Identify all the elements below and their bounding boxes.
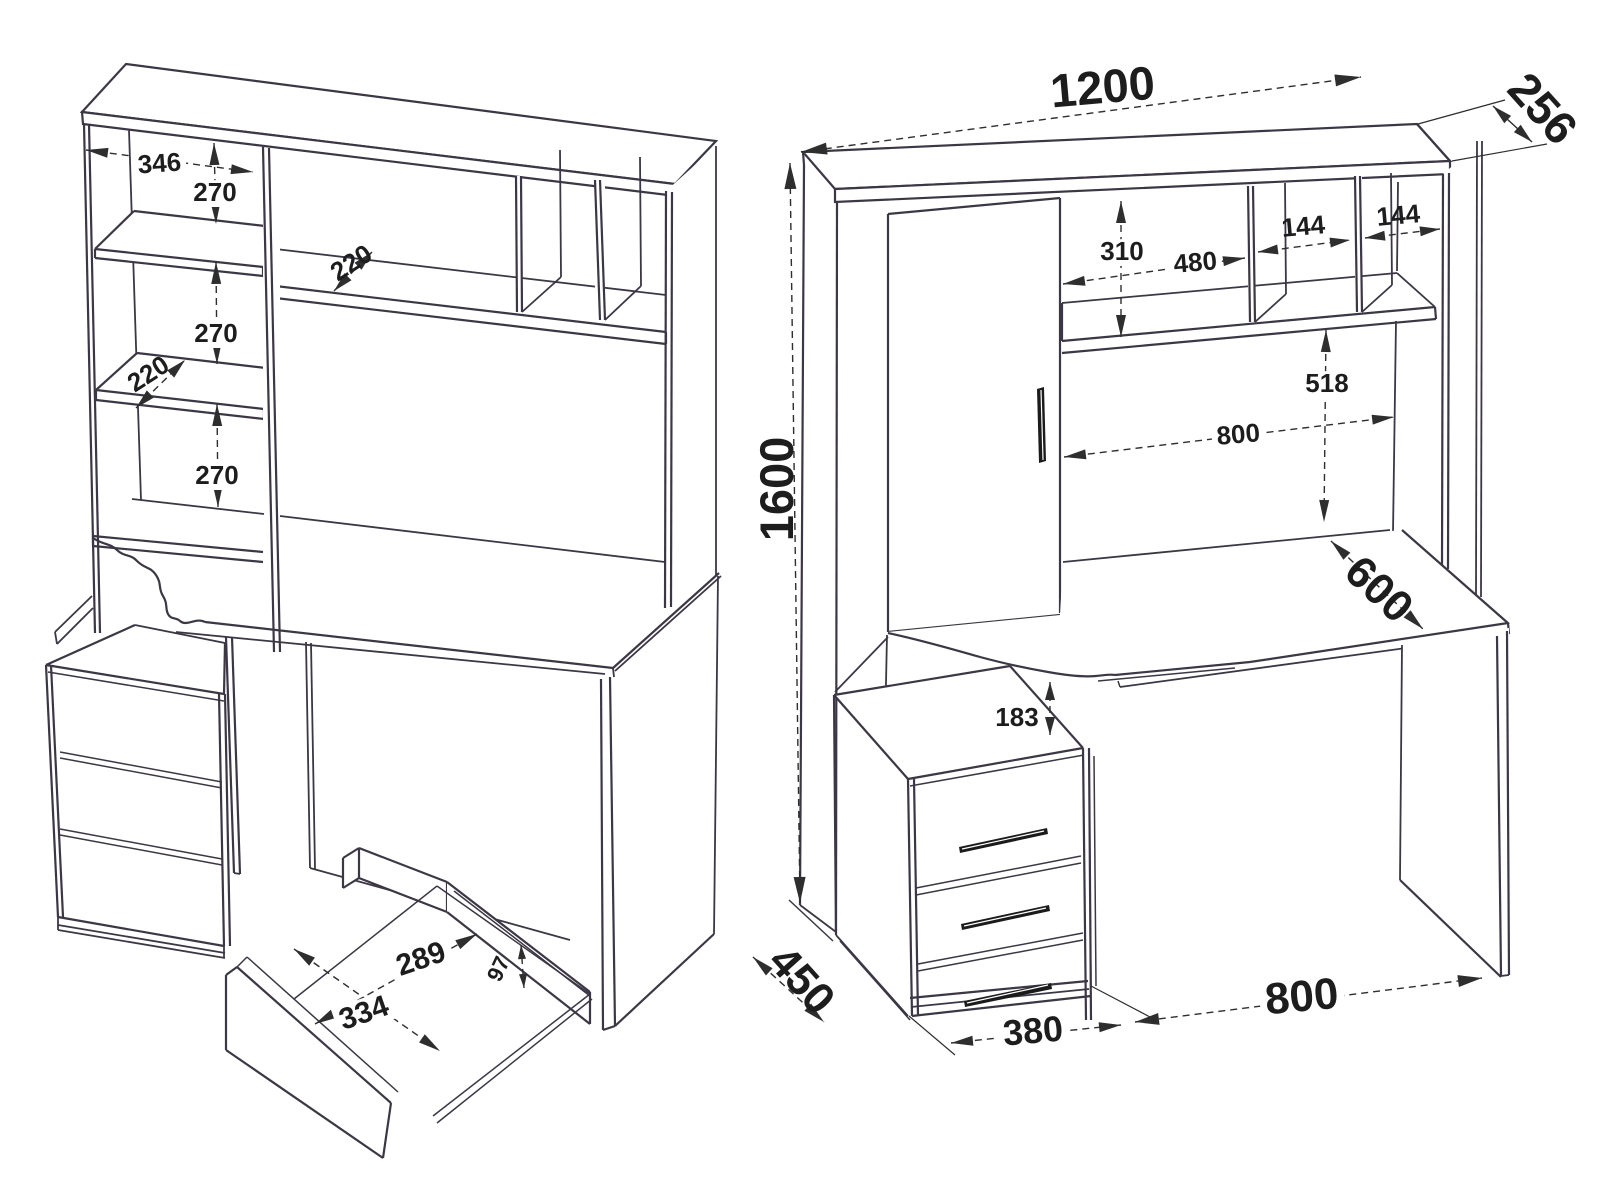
svg-text:144: 144	[1375, 198, 1421, 232]
svg-text:144: 144	[1280, 209, 1326, 243]
svg-text:346: 346	[137, 147, 182, 180]
svg-text:310: 310	[1100, 236, 1143, 266]
svg-text:518: 518	[1305, 368, 1348, 398]
svg-text:270: 270	[194, 318, 237, 348]
svg-text:480: 480	[1172, 245, 1218, 279]
svg-text:270: 270	[193, 177, 236, 207]
svg-text:800: 800	[1215, 417, 1261, 451]
svg-text:380: 380	[1001, 1008, 1064, 1054]
svg-text:183: 183	[995, 702, 1038, 732]
svg-text:270: 270	[195, 460, 238, 490]
svg-text:1200: 1200	[1048, 56, 1157, 118]
svg-text:800: 800	[1263, 969, 1340, 1024]
svg-text:1600: 1600	[750, 437, 803, 542]
